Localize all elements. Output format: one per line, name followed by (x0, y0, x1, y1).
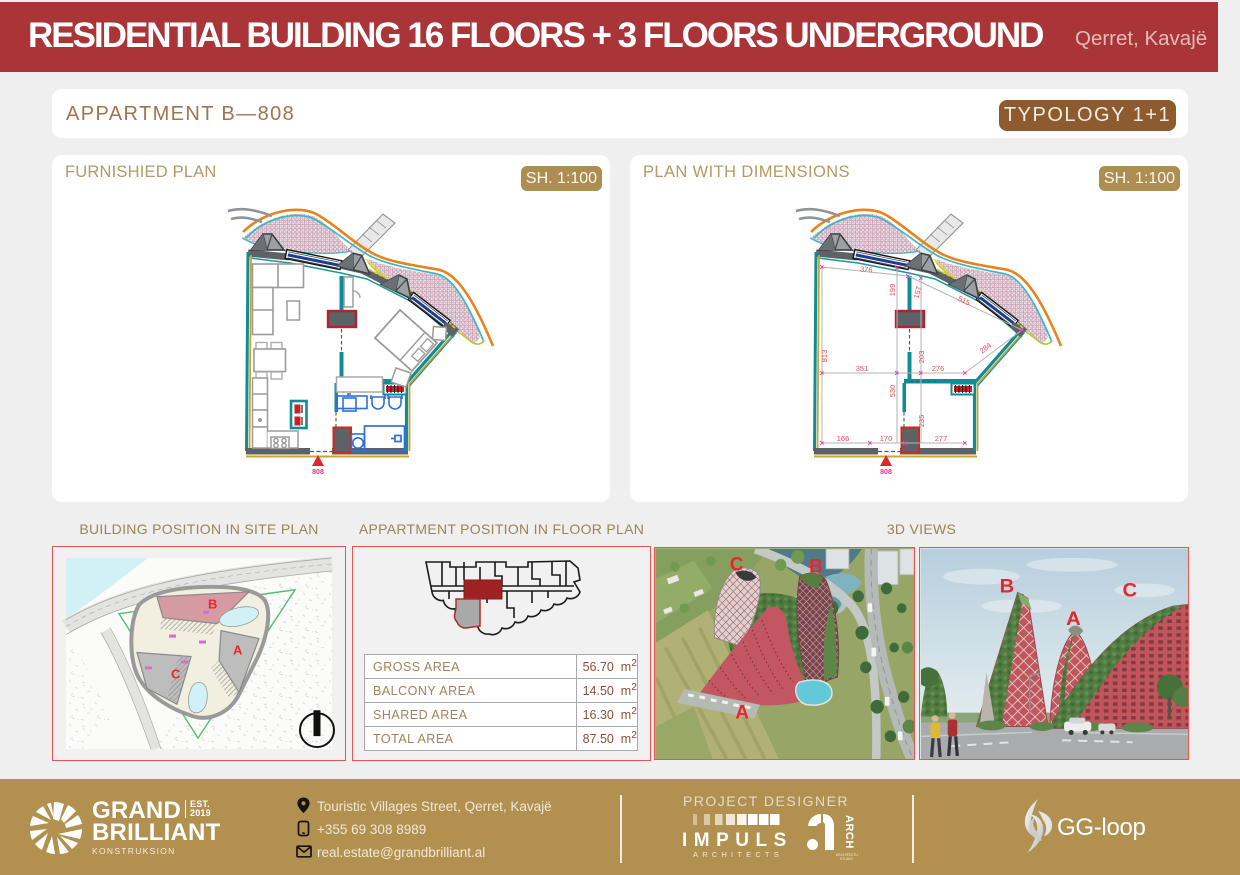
svg-text:199: 199 (888, 284, 897, 297)
svg-text:813: 813 (820, 350, 829, 363)
svg-text:B: B (809, 556, 823, 577)
svg-text:A: A (735, 702, 749, 723)
svg-text:276: 276 (932, 364, 945, 373)
svg-text:C: C (729, 554, 743, 575)
svg-text:166: 166 (837, 434, 850, 443)
svg-text:203: 203 (917, 351, 926, 364)
svg-text:STUDIO: STUDIO (840, 857, 853, 861)
svg-text:B: B (999, 575, 1014, 597)
svg-text:C: C (1122, 579, 1137, 601)
svg-text:530: 530 (888, 385, 897, 398)
svg-text:IMPULS: IMPULS (682, 830, 790, 851)
svg-text:ARCH: ARCH (843, 815, 855, 849)
svg-text:170: 170 (880, 434, 893, 443)
svg-text:376: 376 (860, 264, 873, 274)
svg-text:ARCHITECTS: ARCHITECTS (693, 850, 783, 859)
svg-text:235: 235 (917, 415, 926, 428)
svg-text:A: A (1066, 608, 1081, 630)
svg-text:157: 157 (912, 285, 924, 299)
svg-text:B: B (208, 597, 217, 612)
svg-text:C: C (171, 666, 180, 681)
svg-text:A: A (233, 643, 243, 658)
svg-text:351: 351 (856, 364, 869, 373)
svg-text:277: 277 (935, 434, 948, 443)
